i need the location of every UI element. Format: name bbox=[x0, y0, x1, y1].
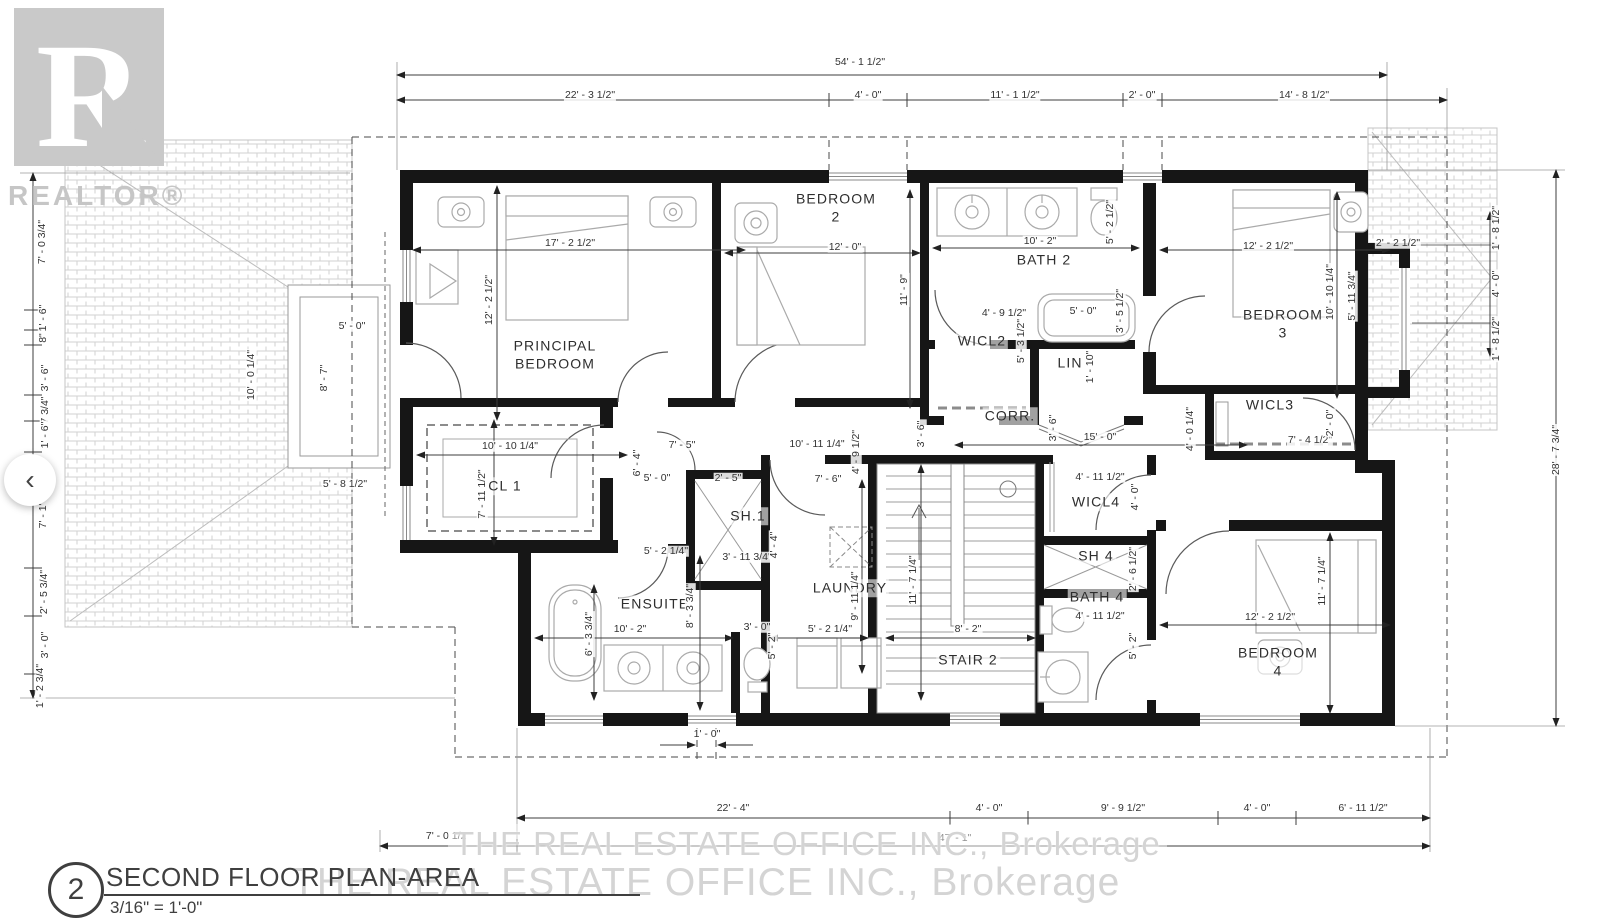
roof-left bbox=[65, 140, 390, 627]
stairs bbox=[877, 464, 1035, 713]
previous-image-button[interactable]: ‹ bbox=[4, 454, 56, 506]
title-underline bbox=[104, 894, 640, 896]
realtor-logo: R bbox=[14, 8, 164, 166]
sheet-number-bubble: 2 bbox=[48, 862, 104, 918]
plan-title: SECOND FLOOR PLAN-AREA bbox=[106, 862, 480, 893]
watermark-line-1: THE REAL ESTATE OFFICE INC., Brokerage bbox=[448, 824, 1167, 864]
realtor-wordmark: REALTOR® bbox=[8, 180, 185, 212]
plan-scale: 3/16" = 1'-0" bbox=[110, 898, 202, 918]
floor-plan-drawing bbox=[0, 0, 1600, 919]
floorplan-page: PRINCIPAL BEDROOMBEDROOM 2BATH 2WICL2LIN… bbox=[0, 0, 1600, 919]
attic-hatch bbox=[830, 527, 872, 567]
chevron-left-icon: ‹ bbox=[25, 464, 34, 496]
roof-right bbox=[1368, 128, 1497, 430]
